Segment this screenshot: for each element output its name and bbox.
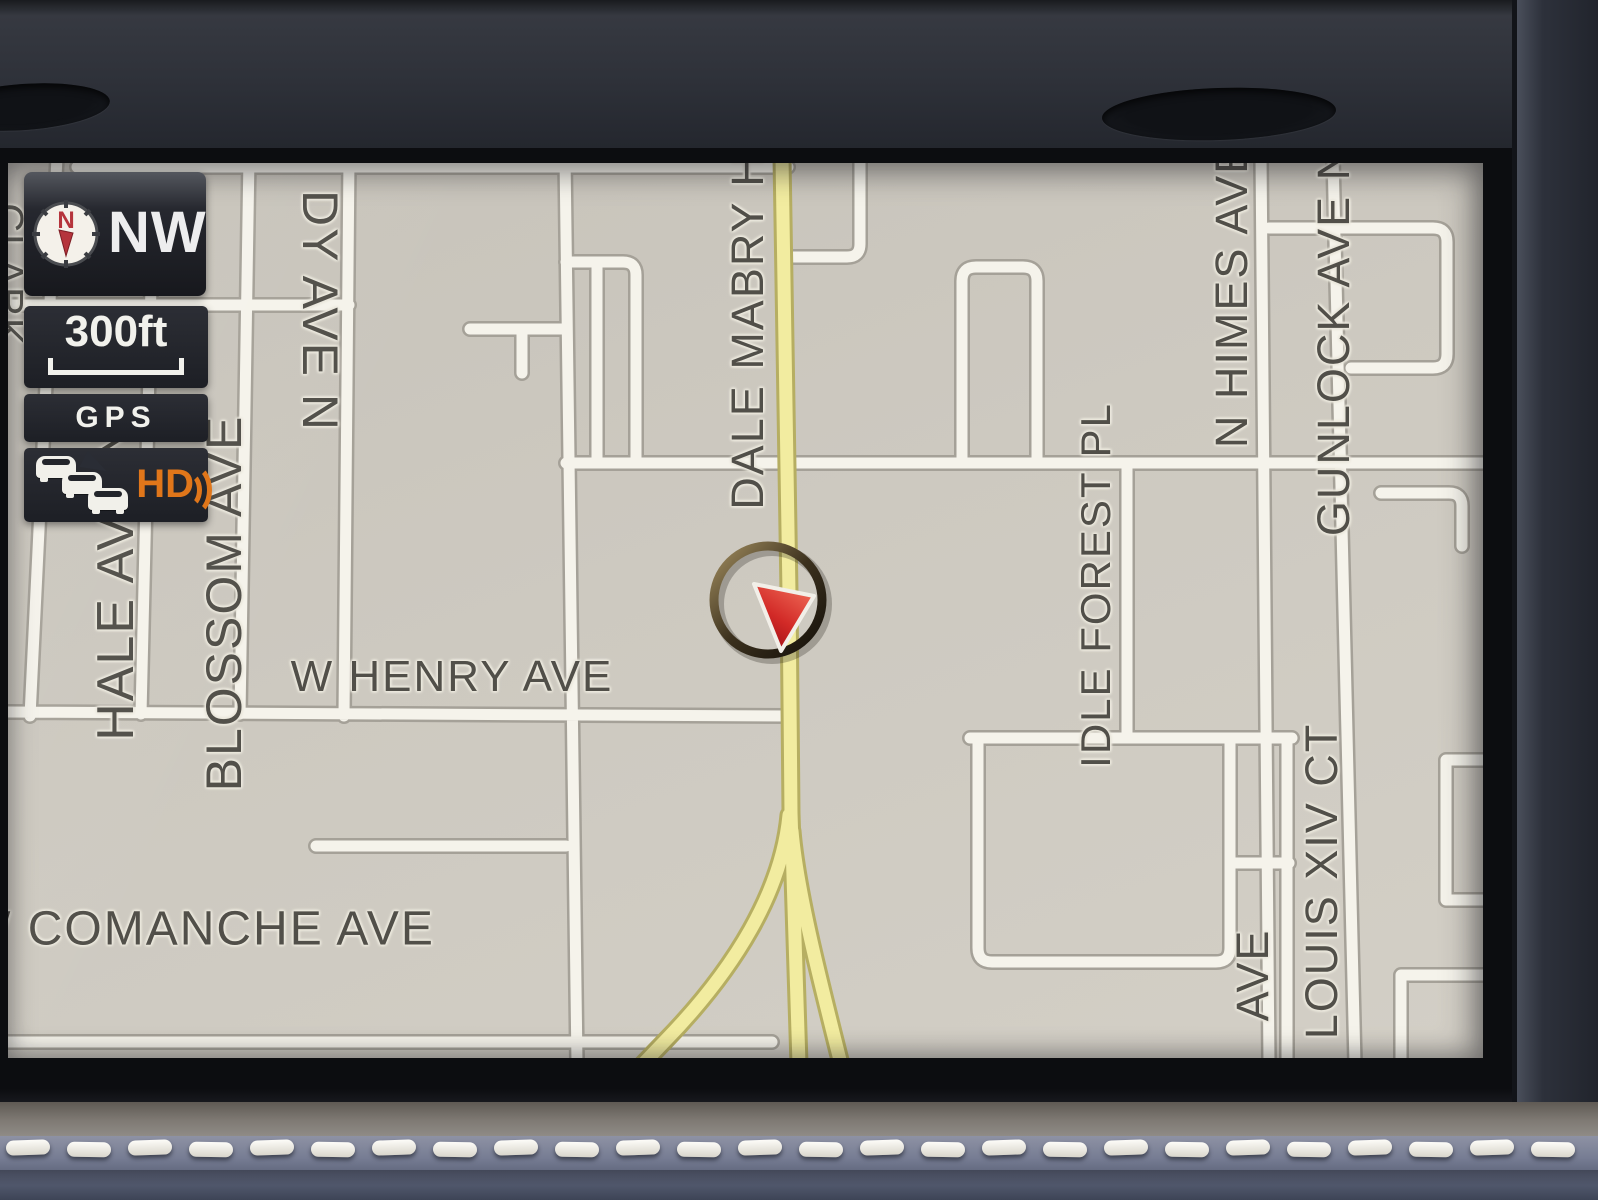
- street-label-w-comanche: W COMANCHE AVE: [8, 902, 435, 957]
- stitch: [1531, 1142, 1575, 1158]
- stitch: [1409, 1142, 1453, 1158]
- stitch: [311, 1142, 355, 1158]
- compass-rose-icon: N: [30, 198, 102, 270]
- stitch: [1348, 1139, 1392, 1156]
- right-trim-panel: [1512, 0, 1598, 1102]
- gps-label: GPS: [24, 394, 208, 442]
- map-scale-badge[interactable]: 300ft: [24, 306, 208, 388]
- stitch: [860, 1139, 904, 1156]
- stitch: [189, 1142, 233, 1158]
- traffic-car-icon: [88, 488, 128, 510]
- vehicle-position-marker: [714, 546, 826, 658]
- stitch: [372, 1139, 416, 1156]
- screen-bezel-top: [0, 148, 1512, 163]
- dashboard-top-bezel: [0, 0, 1512, 148]
- stitch: [799, 1142, 843, 1158]
- street-label-gunlock: GUNLOCK AVE N: [1308, 163, 1360, 536]
- screen-bezel-left: [0, 148, 8, 1102]
- stitch: [1104, 1139, 1148, 1156]
- speaker-vent-icon: [0, 78, 111, 136]
- speaker-vent-icon: [1101, 84, 1337, 144]
- scale-bracket-icon: [48, 358, 184, 375]
- hd-arc-icon: [174, 464, 212, 516]
- scale-distance: 300ft: [24, 306, 208, 358]
- lexus-nav-head-unit: CLARK DY AVE N DALE MABRY H HALE AVE N B…: [0, 0, 1598, 1200]
- stitch: [1226, 1139, 1270, 1156]
- stitch: [250, 1139, 294, 1156]
- stitch: [738, 1139, 782, 1156]
- gps-status-badge: GPS: [24, 394, 208, 442]
- lower-shelf-trim: [0, 1102, 1598, 1136]
- stitch: [982, 1139, 1026, 1156]
- dashboard-shadow: [0, 0, 1512, 16]
- street-label-w-henry: W HENRY AVE: [291, 652, 614, 702]
- stitch: [1043, 1142, 1087, 1158]
- street-label-ave: AVE: [1227, 929, 1279, 1022]
- stitch: [616, 1139, 660, 1156]
- stitch: [921, 1142, 965, 1158]
- leather-crease: [0, 1170, 1598, 1186]
- compass-badge[interactable]: N NW: [24, 172, 206, 296]
- stitch: [1165, 1142, 1209, 1158]
- stitch: [1470, 1139, 1514, 1156]
- stitch: [433, 1142, 477, 1158]
- stitch: [555, 1142, 599, 1158]
- screen-bezel-right: [1483, 148, 1512, 1102]
- street-label-n-himes: N HIMES AVE: [1206, 163, 1258, 448]
- stitch: [6, 1139, 50, 1156]
- leather-stitching: [6, 1140, 1598, 1160]
- compass-heading: NW: [108, 199, 207, 266]
- stitch: [1287, 1142, 1331, 1158]
- street-label-grady: DY AVE N: [291, 190, 349, 432]
- stitch: [494, 1139, 538, 1156]
- stitch: [677, 1142, 721, 1158]
- stitch: [128, 1139, 172, 1156]
- hd-radio-icon: HD: [136, 460, 194, 508]
- traffic-status-badge: HD: [24, 448, 208, 522]
- street-label-idle-forest: IDLE FOREST PL: [1072, 402, 1120, 768]
- street-label-dale-mabry: DALE MABRY H: [722, 163, 774, 510]
- screen-bezel-bottom: [0, 1058, 1512, 1102]
- street-label-louis-xiv: LOUIS XIV CT: [1296, 723, 1348, 1040]
- map-viewport[interactable]: CLARK DY AVE N DALE MABRY H HALE AVE N B…: [8, 163, 1483, 1058]
- stitch: [67, 1142, 111, 1158]
